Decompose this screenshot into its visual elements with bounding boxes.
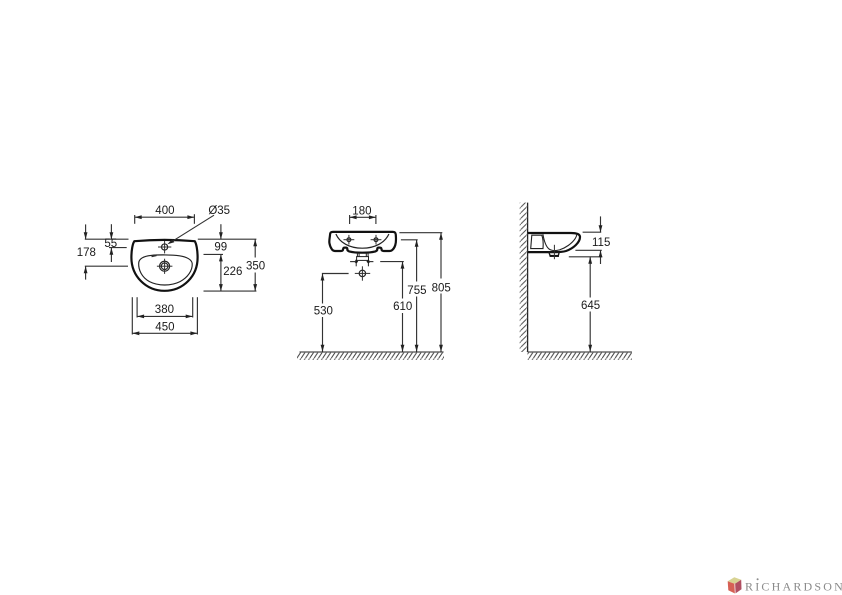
svg-text:805: 805 — [432, 282, 451, 294]
svg-text:226: 226 — [223, 266, 242, 278]
svg-text:530: 530 — [314, 306, 333, 318]
svg-text:180: 180 — [352, 206, 371, 218]
svg-text:645: 645 — [581, 300, 600, 312]
svg-text:178: 178 — [77, 247, 96, 259]
svg-text:400: 400 — [155, 205, 174, 217]
svg-text:RICHARDSON: RICHARDSON — [745, 580, 842, 594]
svg-text:55: 55 — [104, 238, 117, 250]
svg-text:755: 755 — [407, 285, 426, 297]
svg-text:115: 115 — [592, 237, 610, 249]
svg-text:Ø35: Ø35 — [208, 205, 230, 217]
svg-text:610: 610 — [393, 301, 412, 313]
svg-text:380: 380 — [155, 304, 174, 316]
svg-text:450: 450 — [155, 321, 174, 333]
svg-text:350: 350 — [246, 260, 265, 272]
svg-text:99: 99 — [214, 242, 227, 254]
